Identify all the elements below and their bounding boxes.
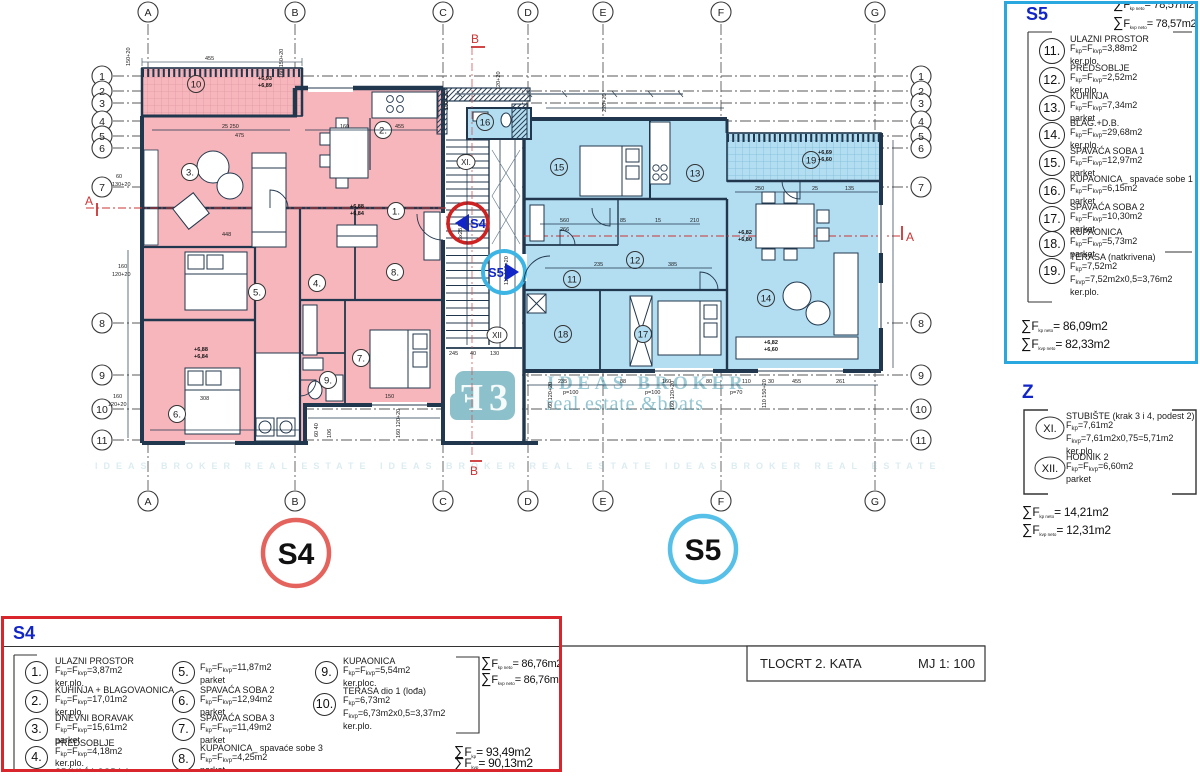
svg-text:14: 14 (761, 294, 772, 305)
svg-text:160 120+20: 160 120+20 (396, 409, 402, 438)
svg-text:7.: 7. (357, 354, 365, 365)
svg-text:261: 261 (836, 379, 845, 385)
svg-text:6: 6 (99, 143, 105, 155)
svg-text:+6,88: +6,88 (350, 204, 364, 210)
svg-text:D: D (524, 496, 532, 508)
svg-text:12: 12 (630, 256, 641, 267)
svg-text:A: A (906, 230, 914, 244)
svg-text:160: 160 (113, 394, 122, 400)
svg-text:10: 10 (96, 404, 108, 416)
svg-text:1: 1 (99, 71, 105, 83)
svg-text:TLOCRT 2. KATA: TLOCRT 2. KATA (760, 656, 862, 671)
svg-text:B: B (291, 496, 298, 508)
svg-text:106: 106 (327, 429, 333, 438)
svg-text:8: 8 (99, 318, 105, 330)
svg-text:25 250: 25 250 (222, 124, 239, 130)
svg-text:250: 250 (755, 186, 764, 192)
svg-text:455: 455 (395, 124, 404, 130)
svg-text:40: 40 (470, 351, 476, 357)
svg-text:17: 17 (638, 330, 649, 341)
svg-text:9.: 9. (324, 376, 332, 387)
svg-text:266: 266 (560, 227, 569, 233)
svg-text:+6,89: +6,89 (258, 83, 272, 89)
svg-text:1.: 1. (392, 207, 400, 218)
svg-text:G: G (871, 7, 879, 19)
svg-text:16: 16 (480, 118, 491, 129)
svg-text:7: 7 (918, 182, 924, 194)
svg-text:30: 30 (768, 379, 774, 385)
svg-text:8: 8 (918, 318, 924, 330)
svg-text:D: D (524, 7, 532, 19)
svg-text:15: 15 (554, 163, 565, 174)
svg-text:C: C (439, 7, 447, 19)
svg-text:11: 11 (567, 275, 577, 286)
svg-text:2.: 2. (379, 126, 387, 137)
svg-text:11: 11 (916, 435, 927, 447)
svg-text:130: 130 (490, 351, 499, 357)
svg-text:120+20: 120+20 (112, 272, 131, 278)
svg-text:E: E (599, 7, 606, 19)
svg-text:MJ 1: 100: MJ 1: 100 (918, 656, 975, 671)
svg-text:5: 5 (918, 131, 924, 143)
svg-text:+6,60: +6,60 (818, 157, 832, 163)
svg-text:60 40: 60 40 (314, 423, 320, 437)
svg-text:+6,84: +6,84 (194, 354, 209, 360)
svg-text:160 120+20: 160 120+20 (670, 381, 676, 410)
svg-text:110: 110 (742, 379, 751, 385)
svg-text:235: 235 (558, 379, 567, 385)
svg-text:B: B (470, 464, 478, 478)
svg-text:455: 455 (205, 56, 214, 62)
svg-text:A: A (85, 194, 93, 208)
svg-text:XI.: XI. (461, 158, 471, 167)
svg-text:19: 19 (806, 156, 817, 167)
svg-text:10: 10 (915, 404, 927, 416)
svg-text:88: 88 (620, 379, 626, 385)
svg-text:1: 1 (918, 71, 924, 83)
svg-text:+6,82: +6,82 (738, 230, 752, 236)
svg-text:E: E (599, 496, 606, 508)
svg-text:120+20: 120+20 (108, 402, 127, 408)
svg-text:8.: 8. (391, 268, 399, 279)
svg-text:B: B (291, 7, 298, 19)
svg-text:p=100: p=100 (563, 390, 578, 396)
svg-text:F: F (718, 7, 724, 19)
svg-text:15: 15 (655, 218, 661, 224)
svg-text:+6,88: +6,88 (194, 347, 208, 353)
svg-text:135: 135 (845, 186, 854, 192)
svg-text:4.: 4. (313, 279, 321, 290)
svg-text:3: 3 (99, 98, 105, 110)
svg-text:5: 5 (99, 131, 105, 143)
svg-text:XII.: XII. (1042, 463, 1059, 475)
svg-text:245: 245 (449, 351, 458, 357)
svg-text:560: 560 (560, 218, 569, 224)
svg-text:455: 455 (792, 379, 801, 385)
svg-text:448: 448 (222, 232, 231, 238)
svg-text:385: 385 (668, 262, 677, 268)
svg-text:160: 160 (118, 264, 127, 270)
svg-text:B: B (471, 32, 479, 46)
svg-text:S4: S4 (470, 216, 487, 231)
svg-text:13: 13 (690, 169, 701, 180)
svg-text:150+20: 150+20 (444, 91, 450, 110)
svg-text:7: 7 (99, 182, 105, 194)
svg-text:3: 3 (918, 98, 924, 110)
svg-text:F: F (460, 377, 483, 419)
svg-text:120+20: 120+20 (496, 71, 502, 90)
svg-text:+6,80: +6,80 (738, 237, 752, 243)
svg-text:9: 9 (99, 370, 105, 382)
svg-text:160 150+20: 160 150+20 (279, 49, 285, 78)
svg-text:+6,93: +6,93 (258, 76, 272, 82)
svg-text:85: 85 (620, 218, 626, 224)
svg-text:XII: XII (492, 331, 502, 340)
svg-text:F: F (718, 496, 724, 508)
svg-text:2: 2 (918, 86, 924, 98)
svg-text:p=100: p=100 (645, 390, 660, 396)
svg-text:308: 308 (200, 396, 209, 402)
svg-text:80: 80 (706, 379, 712, 385)
svg-text:6: 6 (918, 143, 924, 155)
svg-text:130+20: 130+20 (112, 182, 131, 188)
svg-text:60: 60 (116, 174, 122, 180)
svg-text:S5: S5 (685, 534, 722, 567)
svg-text:S4: S4 (278, 538, 315, 571)
svg-text:18: 18 (558, 330, 569, 341)
svg-text:150+20: 150+20 (126, 47, 132, 66)
svg-text:4: 4 (918, 116, 924, 128)
svg-text:235: 235 (594, 262, 603, 268)
svg-text:9: 9 (918, 370, 924, 382)
svg-text:220+20: 220+20 (602, 93, 608, 112)
svg-text:XI.: XI. (1043, 423, 1056, 435)
svg-text:A: A (144, 7, 151, 19)
svg-text:+6,69: +6,69 (818, 150, 832, 156)
svg-text:4: 4 (99, 116, 105, 128)
svg-text:60 120+20: 60 120+20 (548, 382, 554, 408)
svg-text:3.: 3. (186, 168, 194, 179)
svg-text:p=70: p=70 (730, 390, 742, 396)
svg-text:A: A (144, 496, 151, 508)
svg-text:25: 25 (812, 186, 818, 192)
svg-text:475: 475 (235, 133, 244, 139)
svg-text:150: 150 (385, 394, 394, 400)
svg-text:IDEAS BROKER REAL ESTATE IDEAS: IDEAS BROKER REAL ESTATE IDEAS BROKER RE… (95, 461, 942, 471)
svg-text:+6,84: +6,84 (350, 211, 365, 217)
svg-text:5.: 5. (253, 288, 261, 299)
svg-text:6.: 6. (173, 410, 181, 421)
svg-text:S5: S5 (488, 265, 504, 280)
svg-text:2: 2 (99, 86, 105, 98)
svg-text:11: 11 (97, 435, 108, 447)
svg-text:160: 160 (340, 124, 349, 130)
svg-text:3: 3 (489, 377, 508, 419)
svg-text:10: 10 (191, 80, 202, 91)
svg-text:C: C (439, 496, 447, 508)
svg-text:real estate &boats: real estate &boats (546, 393, 704, 415)
svg-text:210: 210 (690, 218, 699, 224)
svg-text:110 150+20: 110 150+20 (762, 379, 768, 408)
svg-text:+6,82: +6,82 (764, 340, 778, 346)
svg-text:+6,60: +6,60 (764, 347, 778, 353)
svg-text:G: G (871, 496, 879, 508)
